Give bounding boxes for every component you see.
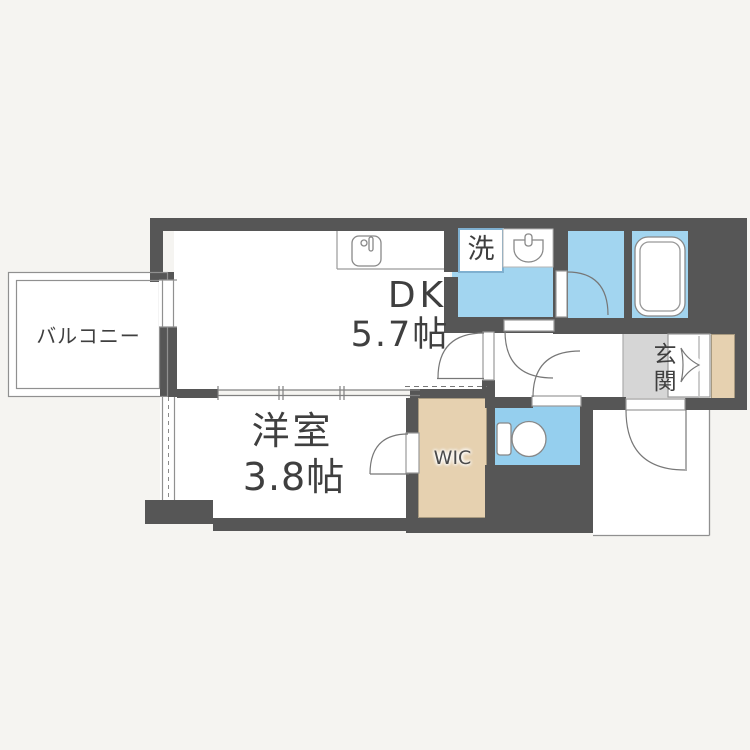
toilet-area	[495, 406, 582, 465]
wall-front-right	[685, 398, 747, 410]
bathroom-area	[565, 231, 625, 318]
wall-wic-left-upper	[406, 398, 418, 433]
wall-toilet-bottom-block	[485, 465, 593, 533]
western-room-size: 3.8帖	[188, 458, 400, 498]
bathtub-area	[630, 231, 688, 318]
western-room-label: 洋室	[190, 412, 395, 452]
hallway-area	[495, 333, 623, 397]
western-window	[160, 397, 177, 500]
wall-wic-bottom	[406, 518, 495, 533]
wall-western-bottom	[213, 518, 412, 531]
wall-top	[150, 218, 747, 231]
wic-label: WIC	[418, 449, 487, 469]
wall-left-top	[150, 218, 163, 274]
dk-room-label: DK	[330, 277, 505, 315]
wall-left-step	[150, 272, 174, 282]
wall-bath-tub-divider	[624, 231, 632, 318]
wall-wic-toilet	[487, 398, 495, 465]
wall-left-mid	[160, 326, 177, 397]
wall-wash-bath-divider	[553, 231, 568, 318]
porch-area	[711, 334, 735, 400]
wall-corridor-left	[580, 410, 593, 533]
wall-bath-bottom	[553, 318, 690, 334]
corridor-area	[593, 410, 710, 536]
dk-room-size: 5.7帖	[320, 317, 480, 354]
floorplan-canvas: バルコニー DK 5.7帖 洋室 3.8帖 WIC 玄関 洗	[0, 0, 750, 750]
balcony-label: バルコニー	[16, 326, 161, 347]
wall-partition-left	[177, 389, 218, 398]
wall-top-right-block	[688, 229, 747, 334]
wall-kitchen-divider-upper	[444, 231, 458, 272]
wall-hall-toilet-right	[580, 397, 626, 410]
entrance-label: 玄関	[650, 339, 674, 399]
wall-wic-left-lower	[406, 473, 418, 518]
laundry-label: 洗	[459, 236, 503, 264]
wall-bottom-left-block	[145, 500, 213, 524]
wall-wic-top	[410, 389, 487, 398]
